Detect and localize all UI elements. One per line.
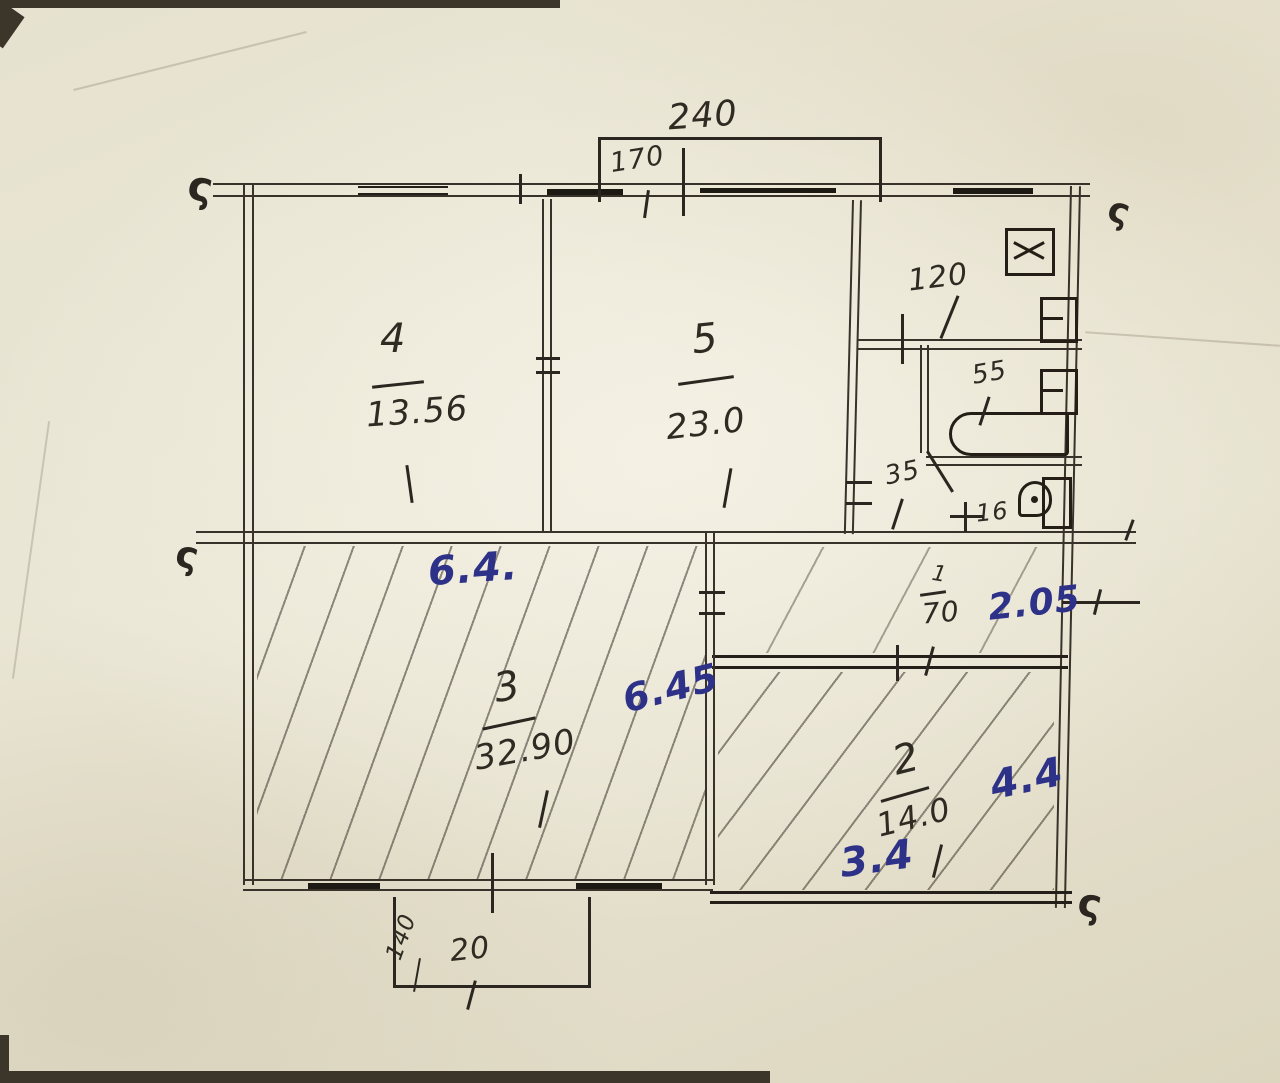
wall-room3-room2 bbox=[705, 533, 715, 885]
dim-bath-fixture: 55 bbox=[970, 355, 1010, 391]
dim-tick bbox=[901, 314, 904, 364]
room3-number: 3 bbox=[490, 662, 524, 712]
dim-hall-width-pencil: 70 bbox=[921, 594, 961, 630]
door-mark bbox=[699, 591, 725, 594]
wall-bath-partition bbox=[920, 345, 929, 453]
wall-room5-hall bbox=[844, 200, 862, 534]
floor-plan-photo: ς ς ς ς 240 170 4 13.56 5 23.0 3 32.90 2… bbox=[0, 0, 1280, 1083]
sink-icon bbox=[1040, 297, 1078, 343]
label-stroke bbox=[891, 498, 903, 529]
section-mark: ς bbox=[172, 534, 202, 576]
room2-number: 2 bbox=[888, 733, 925, 784]
paper-crease bbox=[73, 31, 306, 91]
wall-room4-room5 bbox=[542, 199, 552, 533]
section-mark: ς bbox=[1103, 192, 1133, 232]
bathtub-icon bbox=[949, 412, 1069, 456]
room5-fraction-bar bbox=[678, 375, 734, 386]
room3-area: 32.90 bbox=[471, 721, 579, 778]
door-mark bbox=[846, 481, 872, 484]
toilet-tank-icon bbox=[1042, 477, 1072, 529]
label-stroke bbox=[405, 465, 413, 503]
section-mark: ς bbox=[185, 164, 217, 210]
wall-bath-wc bbox=[926, 456, 1082, 466]
section-mark: ς bbox=[1075, 882, 1105, 926]
room5-number: 5 bbox=[690, 315, 721, 364]
window-bottom-2 bbox=[576, 883, 662, 889]
dim-tick bbox=[682, 148, 685, 216]
dim-wc-width: 16 bbox=[975, 496, 1010, 527]
photo-edge-top bbox=[0, 0, 560, 8]
window-top-4 bbox=[953, 188, 1033, 194]
toilet-dot bbox=[1031, 496, 1038, 503]
wall-hall-room2 bbox=[712, 655, 1068, 669]
room5-area: 23.0 bbox=[664, 400, 747, 448]
photo-edge-left bbox=[0, 1035, 9, 1083]
ink-room2-depth: 3.4 bbox=[837, 831, 917, 887]
door-mark bbox=[536, 357, 560, 360]
sink-icon bbox=[1040, 369, 1078, 415]
door-mark bbox=[699, 612, 725, 615]
balcony-bottom bbox=[393, 897, 591, 988]
label-stroke bbox=[538, 790, 548, 828]
sink-line bbox=[1043, 389, 1063, 392]
door-swing-stroke bbox=[939, 295, 959, 339]
dim-balcony-top-width: 240 bbox=[667, 94, 739, 139]
label-stroke bbox=[723, 468, 732, 508]
ink-room2-width: 4.4 bbox=[986, 749, 1068, 809]
dim-hall-numerator: 1 bbox=[930, 561, 949, 588]
paper-crease bbox=[1085, 331, 1280, 347]
window-top-1 bbox=[358, 186, 448, 195]
dim-tick bbox=[964, 502, 967, 532]
wall-right bbox=[1055, 186, 1081, 908]
room4-area: 13.56 bbox=[365, 388, 470, 435]
wall-bottom-right bbox=[710, 891, 1072, 904]
door-mark bbox=[896, 645, 899, 681]
ink-corridor-width: 6.4. bbox=[427, 543, 520, 595]
wall-middle bbox=[196, 531, 1136, 544]
photo-edge-bottom bbox=[0, 1071, 770, 1083]
label-stroke bbox=[932, 844, 943, 878]
sink-line bbox=[1043, 317, 1063, 320]
vent-shaft-icon bbox=[1005, 228, 1055, 276]
room4-fraction-bar bbox=[372, 380, 424, 388]
room4-number: 4 bbox=[380, 316, 406, 362]
door-mark bbox=[846, 502, 872, 505]
dim-bath-door: 35 bbox=[882, 455, 923, 492]
dim-balcony-bottom-width: 20 bbox=[448, 930, 492, 969]
dim-tick bbox=[950, 515, 984, 518]
dim-bathroom-width: 120 bbox=[906, 256, 970, 298]
window-bottom-1 bbox=[308, 883, 380, 889]
paper-crease bbox=[12, 421, 50, 679]
door-mark bbox=[536, 371, 560, 374]
dim-tick bbox=[519, 174, 522, 204]
